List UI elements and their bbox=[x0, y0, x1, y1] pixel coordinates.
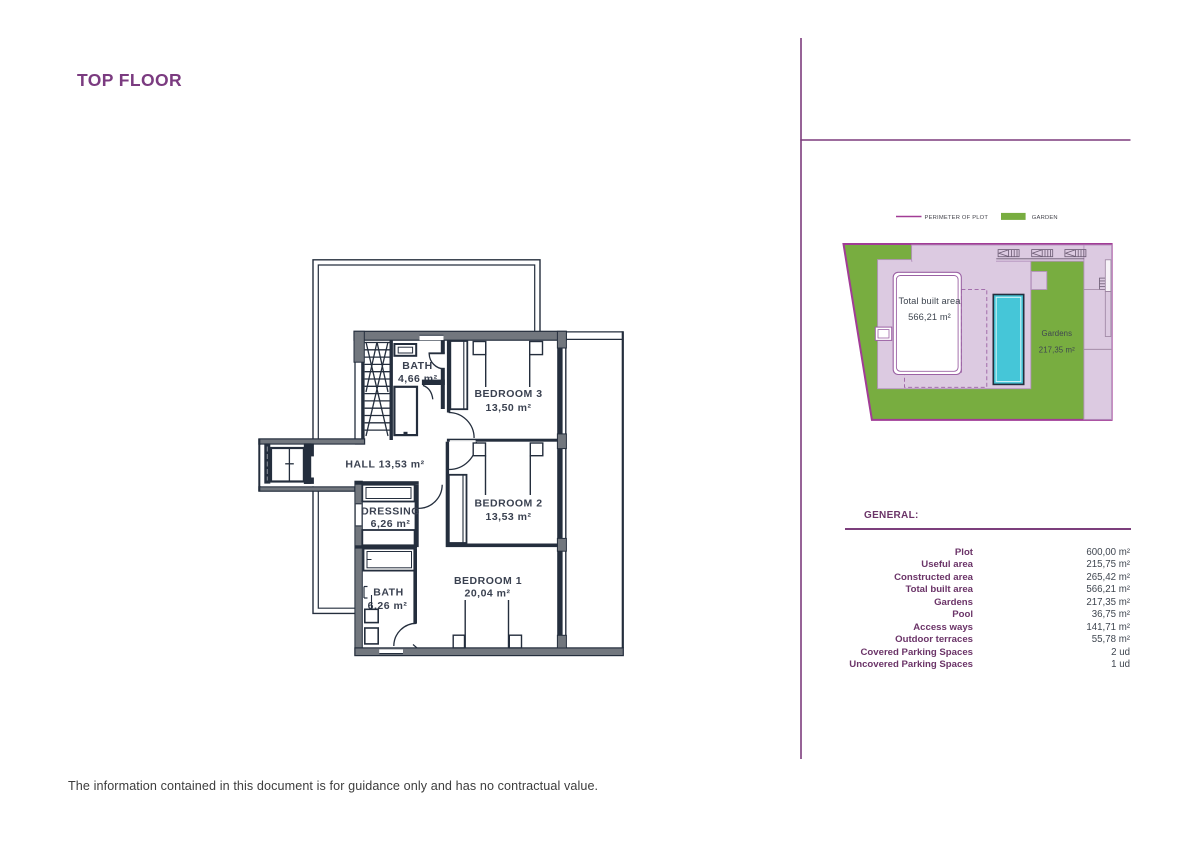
svg-text:PERIMETER OF PLOT: PERIMETER OF PLOT bbox=[925, 215, 989, 221]
svg-text:Total built area: Total built area bbox=[898, 296, 961, 306]
svg-text:217,35 m²: 217,35 m² bbox=[1039, 345, 1075, 354]
svg-text:Gardens: Gardens bbox=[1041, 329, 1072, 338]
svg-text:GARDEN: GARDEN bbox=[1032, 215, 1058, 221]
svg-text:566,21 m²: 566,21 m² bbox=[908, 312, 951, 322]
